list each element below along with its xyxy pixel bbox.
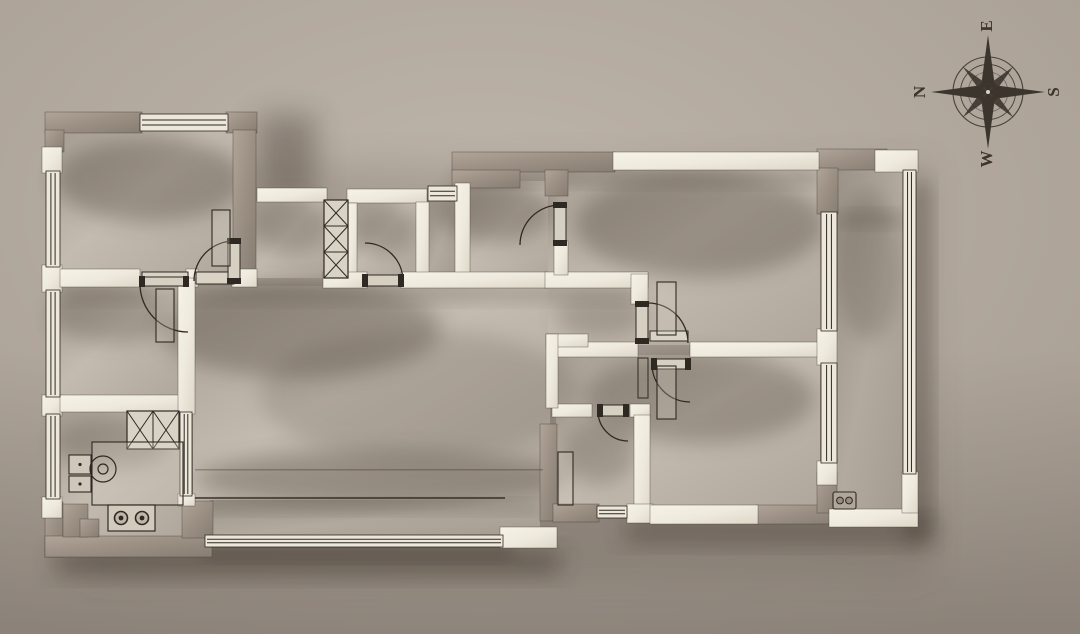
wall-cap-left-2 [42, 265, 62, 292]
compass-label-top: E [977, 20, 996, 31]
wall-lstub-v [546, 334, 558, 408]
stove [108, 505, 155, 531]
outlet [833, 492, 856, 509]
shadow-notch [258, 115, 316, 197]
wall-left-divider [178, 278, 195, 414]
compass-label-right: S [1044, 87, 1063, 96]
wall-tr-room-left [631, 274, 648, 304]
wall-bath2-corner [627, 504, 653, 523]
wall-bath1-top [347, 189, 427, 203]
floor-shading-12 [836, 190, 900, 340]
shadow-balcony-window [205, 546, 513, 558]
wall-divider-west [60, 269, 140, 287]
window-balcony-rail [903, 170, 916, 474]
floor-shading-7 [260, 330, 580, 460]
wardrobe-bedroom1 [212, 210, 230, 266]
wall-ne-corner-v [817, 168, 838, 214]
wall-shading-3 [203, 502, 540, 512]
window-left-1 [46, 171, 60, 267]
kitchen-sink-upper [69, 455, 91, 474]
bath2-vanity [558, 452, 573, 505]
window-left-2 [46, 290, 60, 397]
wall-balcony-se [902, 472, 918, 513]
closet-shaft [324, 200, 348, 278]
wall-cap-left-4 [42, 497, 62, 518]
window-bedroom1-top [140, 114, 228, 131]
floor-line [195, 469, 543, 471]
wall-top-right [613, 152, 819, 170]
floorplan-image: ESWN [0, 0, 1080, 634]
wardrobe-tr-room [657, 282, 676, 335]
wall-kitchen-top [60, 395, 193, 412]
wall-bottom-white [650, 505, 758, 524]
floor-step-line [195, 497, 505, 499]
wall-ne-cap [875, 150, 918, 172]
wall-entry-stub [545, 170, 568, 196]
wall-shading-4 [838, 213, 904, 225]
compass-label-left: N [910, 85, 929, 98]
floor-shading-0 [55, 138, 245, 222]
wall-bath2-bottom [553, 504, 599, 522]
wall-kitchen-bottom [45, 536, 212, 557]
wall-entry-door-below [554, 241, 568, 275]
wall-shading-0 [613, 170, 819, 184]
wall-cap-left-3 [42, 395, 62, 416]
window-right-2 [821, 363, 837, 463]
wall-corridor-top [257, 188, 327, 202]
wardrobe-br-room [657, 366, 676, 419]
floor-shading-3 [250, 197, 330, 253]
window-left-3 [46, 414, 60, 499]
window-balcony-south [205, 535, 503, 547]
wall-cap-left-1 [42, 147, 62, 173]
wardrobe-bedroom2 [156, 289, 174, 342]
wall-balcony-sw-corner [500, 527, 557, 548]
floorplan-svg: ESWN [0, 0, 1080, 634]
wall-entry-top [452, 152, 615, 172]
wall-shading-2 [60, 287, 640, 301]
compass-label-bottom: W [977, 151, 996, 168]
floor-shading-4 [353, 206, 417, 254]
wall-balcony-west [182, 501, 213, 538]
window-right-1 [821, 212, 837, 331]
floor-shading-9 [575, 173, 825, 277]
window-entry-small [428, 186, 457, 201]
wall-bath1-right [416, 202, 429, 279]
wall-kitchen-step2 [80, 519, 99, 537]
window-bath2-south [597, 506, 627, 518]
wall-living-top-b [401, 272, 547, 288]
wall-right-divider-cap [817, 329, 837, 365]
wall-right-cap-2 [817, 461, 837, 485]
wall-mid-h-east [690, 342, 830, 357]
kitchen-sink-lower [69, 476, 91, 492]
